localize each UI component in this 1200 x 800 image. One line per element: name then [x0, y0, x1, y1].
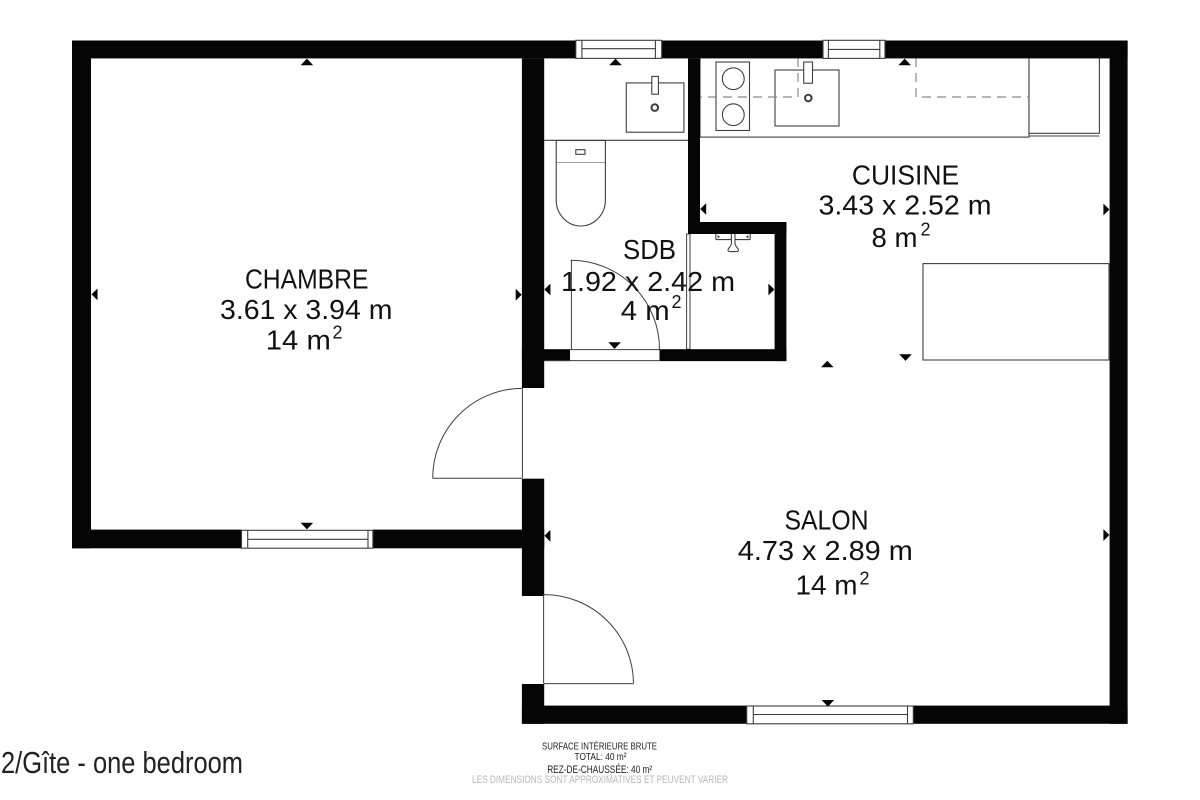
svg-text:4.73 x 2.89 m: 4.73 x 2.89 m — [738, 535, 913, 566]
svg-text:SALON: SALON — [785, 505, 869, 536]
svg-text:4 m: 4 m — [621, 295, 670, 326]
svg-text:CUISINE: CUISINE — [852, 159, 959, 190]
svg-text:2: 2 — [921, 219, 931, 239]
svg-text:2: 2 — [333, 322, 343, 342]
svg-text:2: 2 — [860, 569, 870, 589]
svg-text:8 m: 8 m — [872, 222, 918, 253]
svg-text:14 m: 14 m — [796, 570, 858, 601]
svg-text:SDB: SDB — [623, 234, 676, 265]
svg-text:2: 2 — [672, 292, 682, 312]
svg-text:2/Gîte - one bedroom: 2/Gîte - one bedroom — [1, 746, 243, 780]
svg-text:3.61 x 3.94 m: 3.61 x 3.94 m — [220, 294, 392, 325]
svg-text:SURFACE INTÉRIEURE BRUTE: SURFACE INTÉRIEURE BRUTE — [542, 740, 657, 753]
svg-text:TOTAL: 40 m²: TOTAL: 40 m² — [575, 752, 628, 763]
svg-text:CHAMBRE: CHAMBRE — [245, 264, 369, 295]
svg-text:LES DIMENSIONS SONT APPROXIMAT: LES DIMENSIONS SONT APPROXIMATIVES ET PE… — [472, 774, 728, 786]
svg-text:1.92 x 2.42 m: 1.92 x 2.42 m — [561, 266, 735, 297]
svg-text:3.43 x 2.52 m: 3.43 x 2.52 m — [819, 190, 992, 221]
svg-text:14 m: 14 m — [266, 325, 331, 356]
